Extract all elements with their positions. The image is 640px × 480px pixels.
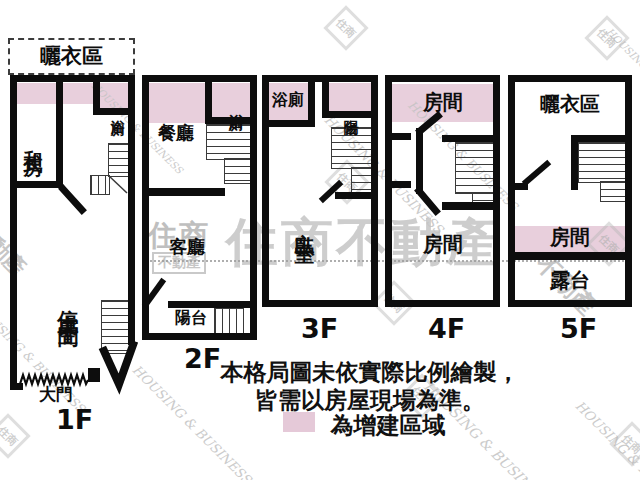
room-label-terrace: 露台 [541,270,599,291]
stairs [90,175,110,195]
room-label-master-bedroom: 主臥室 [289,178,315,270]
room-label-bath-2f: 浴廁 [219,84,243,120]
wall-segment [10,75,135,82]
wall-segment [142,333,257,340]
wall-segment [142,188,225,196]
door-swing-5f [526,164,547,182]
floor-label-5f: 5F [556,313,601,344]
floor-label-1f: 1F [52,404,97,435]
floor-label-4f: 4F [424,313,469,344]
brand-stamp-text: 住商 [619,431,640,457]
brand-stamp-watermark: 住商 [0,413,31,458]
rooftop-drying-area-label: 曬衣區 [40,45,103,67]
room-label-balcony-2f: 陽台 [171,310,211,327]
wall-segment [571,135,578,190]
floor-plan-canvas: 住商 不動產 住商不動產 HOUSING & BUSINESS HOUSING … [0,0,640,480]
legend-addition-swatch [283,412,315,432]
wall-segment [56,82,63,188]
wall-segment [10,75,17,390]
wall-segment [371,75,378,307]
stairs [108,143,130,177]
stairs [101,300,130,354]
room-label-bath-3f: 浴廁 [268,92,308,109]
wall-segment [508,300,632,307]
wall-segment [625,75,632,307]
legend-label: 為增建區域 [323,410,453,441]
wall-segment [385,75,500,82]
gate-post [88,368,100,382]
wall-segment [385,75,392,307]
wall-segment [508,252,632,260]
brand-stamp-text: 住商 [594,25,620,51]
wall-segment [571,135,632,142]
room-label-parking: 停車空間 [51,246,79,364]
wall-segment [335,192,371,199]
rooftop-drying-area-box: 曬衣區 [8,38,135,75]
wall-segment [392,133,411,140]
brand-stamp-watermark: 住商 [323,5,368,50]
room-label-dining: 餐廳 [150,124,202,143]
brand-stamp-watermark: 住商 [584,15,629,60]
wall-segment [442,135,493,142]
room-label-room-4f-bottom: 房間 [414,234,472,255]
wall-segment [262,75,378,82]
wall-segment [442,202,493,210]
brand-stamp-text: 住商 [333,15,359,41]
wall-segment [385,300,500,307]
wall-segment [262,300,378,307]
wall-segment [392,181,411,188]
wall-segment [493,75,500,307]
brand-stamp-text: 住商 [0,423,21,449]
wall-segment [142,75,149,340]
wall-segment [128,75,135,345]
stairs [224,158,252,184]
wall-segment [262,120,315,127]
stairs [206,124,252,160]
wall-segment [10,383,23,390]
room-label-bath-1f: 浴廁 [103,84,125,134]
stair-diagonal-1f [108,175,127,193]
floor-label-3f: 3F [297,313,342,344]
wall-segment [142,75,257,82]
room-label-washitsu: 和式房 [19,92,43,188]
room-label-balcony-3f: 陽台 [336,84,358,132]
wall-segment [262,75,269,307]
room-label-drying-5f: 曬衣區 [525,94,615,115]
disclaimer-line1: 本格局圖未依實際比例繪製， [185,357,555,388]
wall-segment [513,183,528,190]
wall-segment [508,75,515,307]
room-label-living: 客廳 [163,238,211,257]
wall-segment [508,75,632,82]
wall-segment [168,301,257,308]
gate-label: 大門 [33,386,79,404]
balcony-hatch [214,308,244,334]
room-label-room-4f-top: 房間 [414,92,472,113]
addition-area [149,83,206,123]
stairs [331,127,373,169]
room-label-room-5f: 房間 [541,227,599,248]
door-swing-1f [63,189,82,210]
stairs [455,142,495,194]
wall-segment [416,128,423,194]
stairs [578,142,627,183]
stairs [600,181,627,202]
